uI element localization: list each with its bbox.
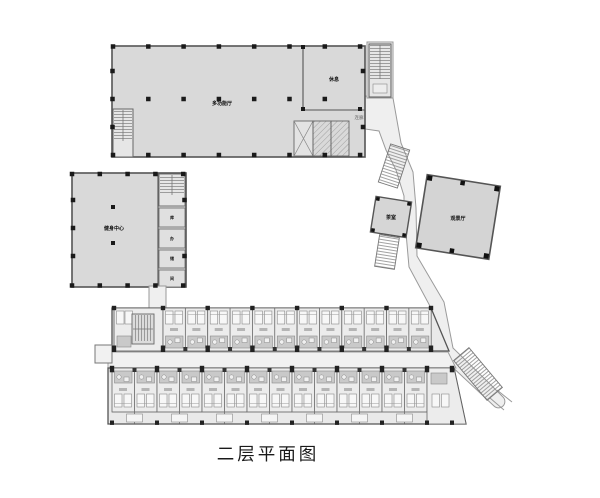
gym-room-label-2: 办 — [170, 235, 174, 241]
gym-room-label-4: 间 — [170, 275, 174, 281]
guest-room-module — [342, 308, 387, 351]
hall-side-room-label: 休息 — [328, 76, 339, 83]
hall-stair-west — [113, 109, 133, 157]
main-hall-label: 多功能厅 — [212, 100, 232, 107]
gym-room-label-1: 库 — [170, 214, 174, 220]
service-core — [294, 121, 349, 156]
floor-plan-svg: 多功能厅 休息 连廊 健身中心 库 办 储 间 茶室 观景厅 二层平面图 — [0, 0, 600, 498]
guest-wing-corridor — [108, 352, 456, 368]
exit-vestibule-west — [95, 345, 112, 363]
guest-room-module — [163, 308, 208, 351]
gym-room-label-3: 储 — [170, 255, 174, 261]
guest-room-end-piece — [427, 368, 466, 424]
gym-label: 健身中心 — [104, 225, 124, 232]
guest-room-module — [208, 308, 253, 351]
exhibition-hall-building — [112, 46, 365, 157]
guest-room-module — [297, 308, 342, 351]
plan-caption: 二层平面图 — [217, 445, 320, 465]
diamond-hall-label: 观景厅 — [450, 215, 465, 222]
stair-south-pavilion — [375, 235, 400, 270]
guest-wing-stair-module — [114, 308, 163, 351]
floor-plan-canvas: 多功能厅 休息 连廊 健身中心 库 办 储 间 茶室 观景厅 二层平面图 — [0, 0, 600, 498]
guest-room-module — [252, 308, 297, 351]
stair-tower-north — [369, 44, 391, 97]
gym-stair — [159, 174, 185, 206]
lobby-label: 连廊 — [355, 114, 364, 121]
guest-room-module — [387, 308, 432, 351]
gym-building — [72, 173, 186, 287]
tea-room-label: 茶室 — [385, 214, 396, 221]
